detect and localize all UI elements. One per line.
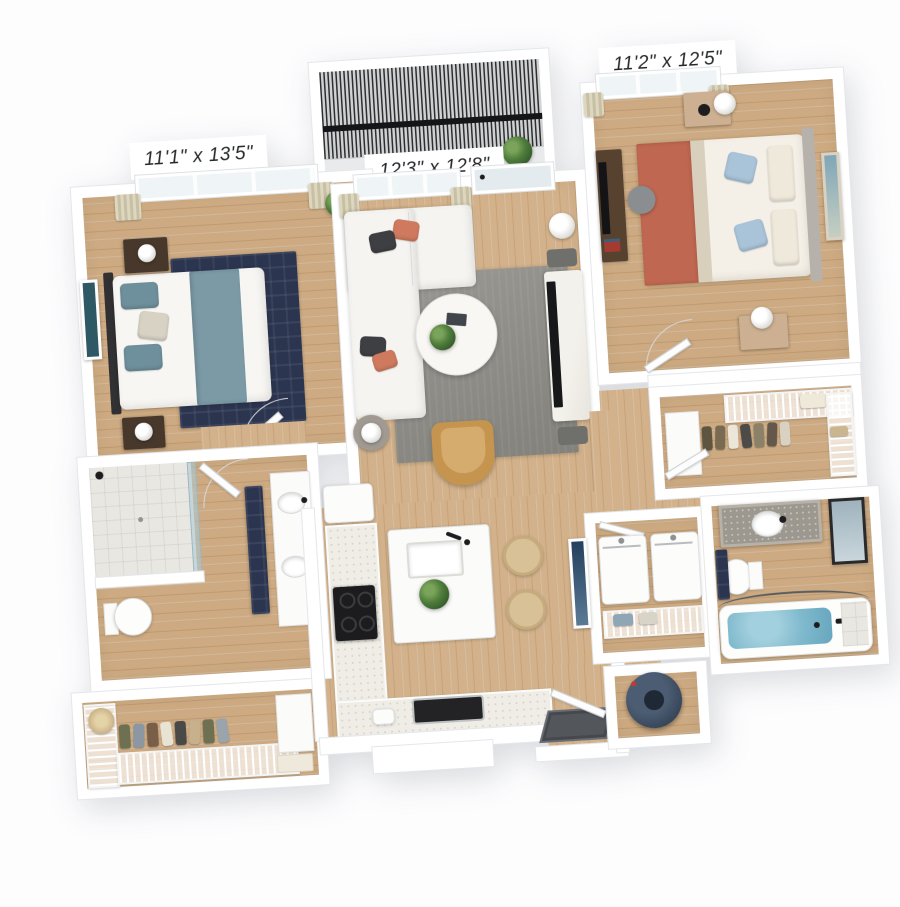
laundry-towels-cream [639, 612, 658, 625]
closet-right-folded-stack [800, 393, 827, 409]
bedroom-left-throw-blanket [189, 269, 247, 406]
floorplan-canvas: 11'1" x 13'5" 12'3" x 12'8" 11'2" x 12'5… [0, 0, 900, 900]
bedroom-right-curtain-left [583, 92, 604, 117]
bedroom-right-pillow-cream-1 [766, 145, 795, 202]
closet-left-storage-box [277, 753, 314, 773]
bedroom-right-pillow-cream-2 [770, 208, 799, 265]
toilet-right-tank [748, 561, 764, 590]
laundry-towels-blue [613, 613, 634, 626]
bathroom-right-mirror [828, 497, 868, 565]
bedroom-left-curtain-left [114, 194, 142, 222]
closet-left-dresser [275, 693, 314, 753]
bedroom-left-pillow-2 [123, 343, 163, 371]
closet-right-clothes-2 [715, 426, 725, 450]
kitchen-fridge [322, 483, 374, 524]
bathtub-tile-surround [840, 601, 869, 647]
bedroom-left-pillow-1 [120, 282, 160, 310]
kitchen-cooktop-appliance [414, 697, 483, 723]
floorplan: 11'1" x 13'5" 12'3" x 12'8" 11'2" x 12'5… [0, 0, 900, 907]
closet-right-clothes-1 [701, 426, 712, 451]
bathtub-water [727, 607, 833, 649]
kitchen-small-appliance [372, 708, 395, 725]
closet-left-clothes-7 [202, 719, 214, 744]
bedroom-right-desk-books [604, 241, 621, 252]
coffee-table-books [446, 313, 467, 327]
closet-left-clothes-6 [189, 720, 201, 744]
console-basket-bottom [557, 426, 588, 446]
sofa-pillow-coral-top [392, 219, 421, 243]
closet-left-clothes-5 [174, 721, 186, 746]
console-basket-top [546, 248, 577, 268]
closet-left-clothes-3 [147, 722, 159, 747]
closet-left-clothes-2 [133, 724, 144, 748]
closet-right-clothes-7 [779, 421, 790, 446]
closet-right-basket [830, 426, 849, 437]
bedroom-left-accent-pillow [137, 310, 170, 341]
island-sink [406, 540, 464, 579]
closet-right-clothes-6 [767, 422, 778, 446]
closet-right-clothes-5 [753, 423, 764, 448]
closet-right-clothes-3 [727, 424, 738, 449]
closet-left-clothes-1 [119, 724, 131, 749]
